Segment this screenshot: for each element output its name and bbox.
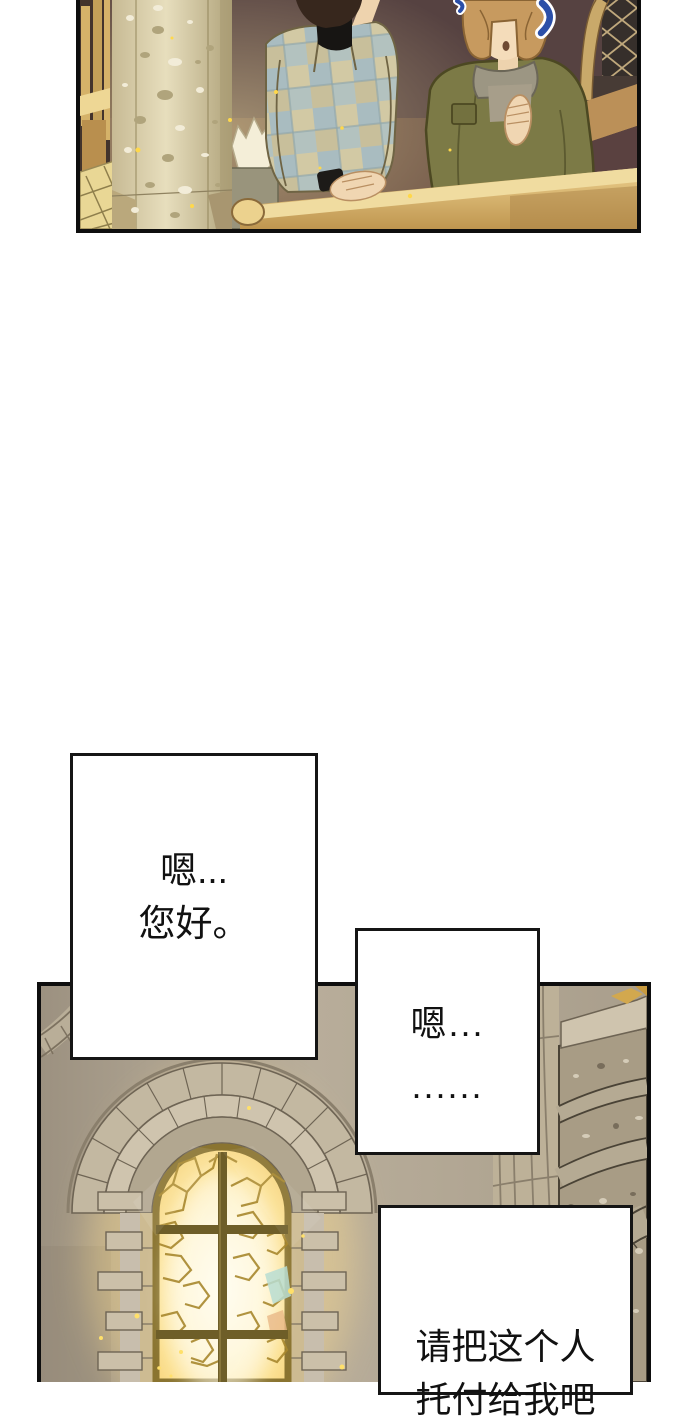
woman-mouth [503, 41, 510, 51]
bubble-1-line-2: 您好。 [73, 897, 315, 950]
bubble-1-line-1: 嗯... [73, 844, 315, 897]
church-pews-illustration [80, 0, 637, 229]
bubble-3-line-2: 托付给我吧 [381, 1373, 630, 1426]
chest-pocket [452, 104, 476, 124]
pew-end-cap [232, 199, 264, 225]
panel-church-pews [76, 0, 641, 233]
stone-pillar [112, 0, 232, 229]
bubble-2-line-2: ...... [358, 1055, 537, 1117]
mullion-horizontal-2 [156, 1330, 288, 1339]
comic-page[interactable]: { "page": { "kind": "webtoon-comic-strip… [0, 0, 690, 1382]
bubble-3-line-1: 请把这个人 [381, 1320, 630, 1373]
bubble-2-line-1: 嗯... [358, 993, 537, 1055]
mullion-vertical [218, 1152, 227, 1382]
speech-bubble-3: 请把这个人 托付给我吧 [378, 1205, 633, 1395]
speech-bubble-1: 嗯... 您好。 [70, 753, 318, 1060]
speech-bubble-2: 嗯... ...... [355, 928, 540, 1155]
mullion-horizontal-1 [156, 1225, 288, 1234]
